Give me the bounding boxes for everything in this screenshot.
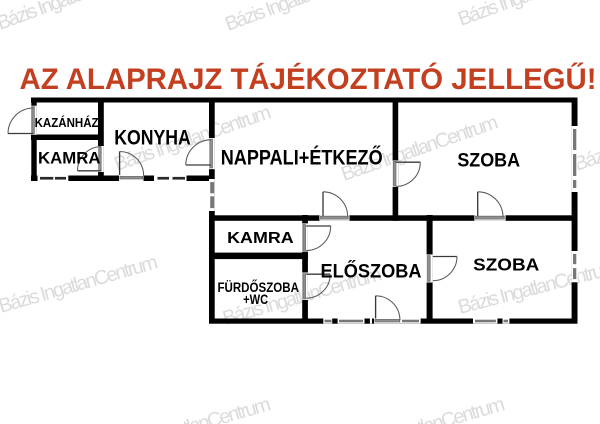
svg-text:SZOBA: SZOBA	[473, 255, 539, 275]
svg-text:AZ ALAPRAJZ TÁJÉKOZTATÓ JELLEG: AZ ALAPRAJZ TÁJÉKOZTATÓ JELLEGŰ!	[20, 62, 597, 96]
svg-text:NAPPALI+ÉTKEZŐ: NAPPALI+ÉTKEZŐ	[221, 146, 383, 169]
svg-text:SZOBA: SZOBA	[457, 149, 520, 171]
svg-text:KONYHA: KONYHA	[114, 127, 191, 150]
svg-text:ELŐSZOBA: ELŐSZOBA	[321, 260, 422, 283]
svg-text:KAZÁNHÁZ: KAZÁNHÁZ	[35, 115, 99, 130]
svg-text:KAMRA: KAMRA	[38, 148, 101, 167]
svg-text:KAMRA: KAMRA	[227, 230, 294, 247]
svg-text:+WC: +WC	[243, 292, 268, 308]
